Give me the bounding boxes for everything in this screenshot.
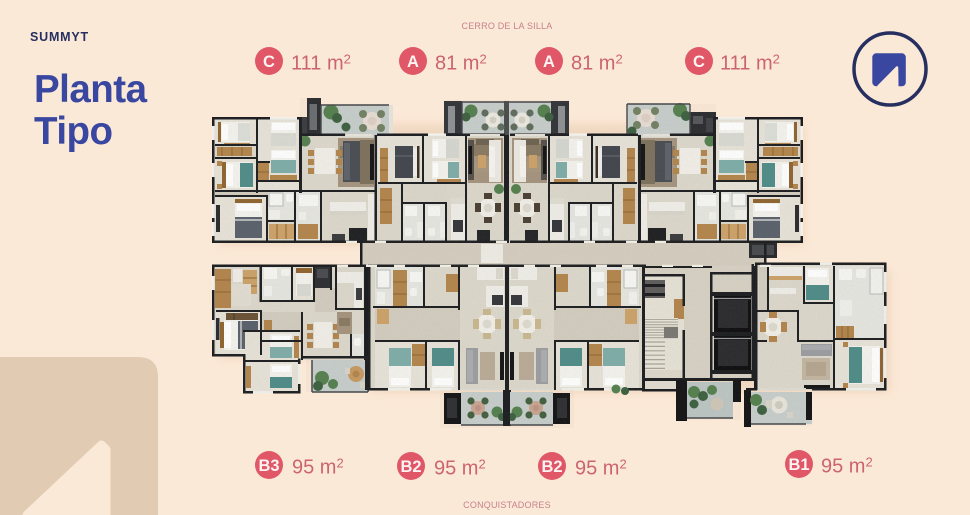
svg-text:CONQUISTADORES: CONQUISTADORES bbox=[463, 500, 551, 510]
svg-text:B2: B2 bbox=[541, 458, 562, 476]
svg-text:95 m2: 95 m2 bbox=[821, 455, 873, 478]
svg-text:95 m2: 95 m2 bbox=[575, 457, 627, 480]
svg-text:111 m2: 111 m2 bbox=[291, 52, 351, 75]
svg-text:81 m2: 81 m2 bbox=[435, 52, 487, 75]
svg-text:B1: B1 bbox=[788, 456, 809, 474]
svg-text:B2: B2 bbox=[400, 458, 421, 476]
svg-text:95 m2: 95 m2 bbox=[434, 457, 486, 480]
svg-text:111 m2: 111 m2 bbox=[720, 52, 780, 75]
svg-text:A: A bbox=[407, 53, 419, 71]
svg-text:CERRO DE LA SILLA: CERRO DE LA SILLA bbox=[462, 21, 553, 31]
svg-text:A: A bbox=[543, 53, 555, 71]
svg-text:95 m2: 95 m2 bbox=[292, 456, 344, 479]
svg-text:SUMMYT: SUMMYT bbox=[30, 30, 89, 44]
svg-text:Tipo: Tipo bbox=[34, 110, 113, 153]
svg-text:81 m2: 81 m2 bbox=[571, 52, 623, 75]
svg-text:Planta: Planta bbox=[34, 68, 148, 111]
svg-text:C: C bbox=[693, 53, 705, 71]
svg-text:B3: B3 bbox=[258, 457, 279, 475]
svg-text:C: C bbox=[263, 53, 275, 71]
